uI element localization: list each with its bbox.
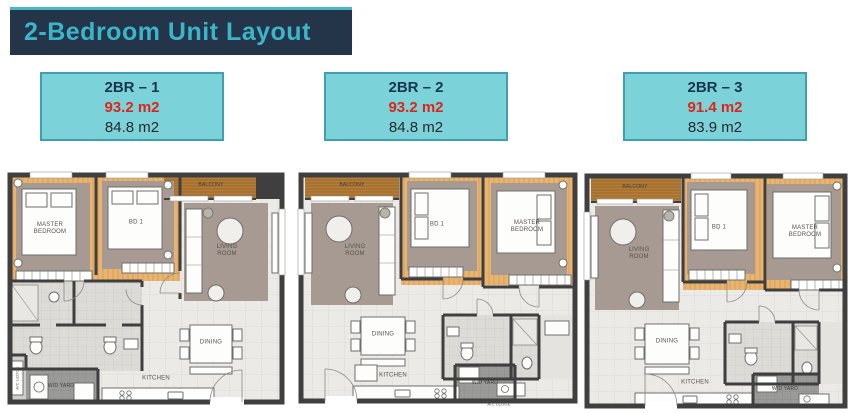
unit-net-area: 83.9 m2 [625, 118, 805, 138]
room-label-dining: DINING [200, 339, 222, 346]
room-label-balcony: BALCONY [339, 182, 364, 188]
room-label-living-room: LIVING ROOM [339, 244, 371, 258]
floorplan-1-drawing [6, 167, 286, 411]
room-label-wd-yard: W/D YARD [472, 380, 498, 386]
room-label-master-bedroom: MASTER BEDROOM [28, 222, 72, 236]
floorplan-2br-3: BALCONY LIVING ROOM BD 1 MASTER BEDROOM … [583, 168, 849, 413]
page-title: 2-Bedroom Unit Layout [24, 18, 311, 47]
room-label-kitchen: KITCHEN [142, 375, 170, 382]
floorplan-2br-2: BALCONY LIVING ROOM BD 1 MASTER BEDROOM … [297, 167, 579, 407]
room-label-wd-yard: W/D YARD [48, 383, 74, 389]
unit-gross-area: 93.2 m2 [42, 98, 222, 118]
unit-card-2br-3: 2BR – 3 91.4 m2 83.9 m2 [623, 72, 807, 141]
room-label-living-room: LIVING ROOM [623, 247, 655, 261]
room-label-dining: DINING [372, 331, 394, 338]
room-label-master-bedroom: MASTER BEDROOM [505, 220, 549, 234]
room-label-balcony: BALCONY [198, 182, 223, 188]
room-label-bd1: BD 1 [129, 219, 143, 226]
header-bar: 2-Bedroom Unit Layout [10, 7, 352, 55]
room-label-living-room: LIVING ROOM [211, 244, 243, 258]
room-label-kitchen: KITCHEN [681, 379, 709, 386]
room-label-dining: DINING [656, 338, 678, 345]
floorplan-3-drawing [583, 168, 849, 413]
unit-net-area: 84.8 m2 [326, 118, 506, 138]
floorplan-2-drawing [297, 167, 579, 407]
room-label-ac-ledge: A/C LEDGE [487, 403, 510, 408]
unit-gross-area: 93.2 m2 [326, 98, 506, 118]
unit-name: 2BR – 3 [625, 78, 805, 98]
unit-gross-area: 91.4 m2 [625, 98, 805, 118]
room-label-bd1: BD 1 [430, 221, 444, 228]
unit-net-area: 84.8 m2 [42, 118, 222, 138]
room-label-kitchen: KITCHEN [379, 372, 407, 379]
unit-card-2br-1: 2BR – 1 93.2 m2 84.8 m2 [40, 72, 224, 141]
room-label-master-bedroom: MASTER BEDROOM [783, 225, 827, 239]
unit-card-2br-2: 2BR – 2 93.2 m2 84.8 m2 [324, 72, 508, 141]
room-label-ac-ledge: A/C LEDGE [16, 366, 21, 389]
room-label-balcony: BALCONY [622, 184, 647, 190]
floorplan-2br-1: MASTER BEDROOM BD 1 BALCONY LIVING ROOM … [6, 167, 286, 411]
unit-name: 2BR – 1 [42, 78, 222, 98]
room-label-wd-yard: W/D YARD [772, 386, 798, 392]
room-label-bd1: BD 1 [712, 224, 726, 231]
unit-name: 2BR – 2 [326, 78, 506, 98]
